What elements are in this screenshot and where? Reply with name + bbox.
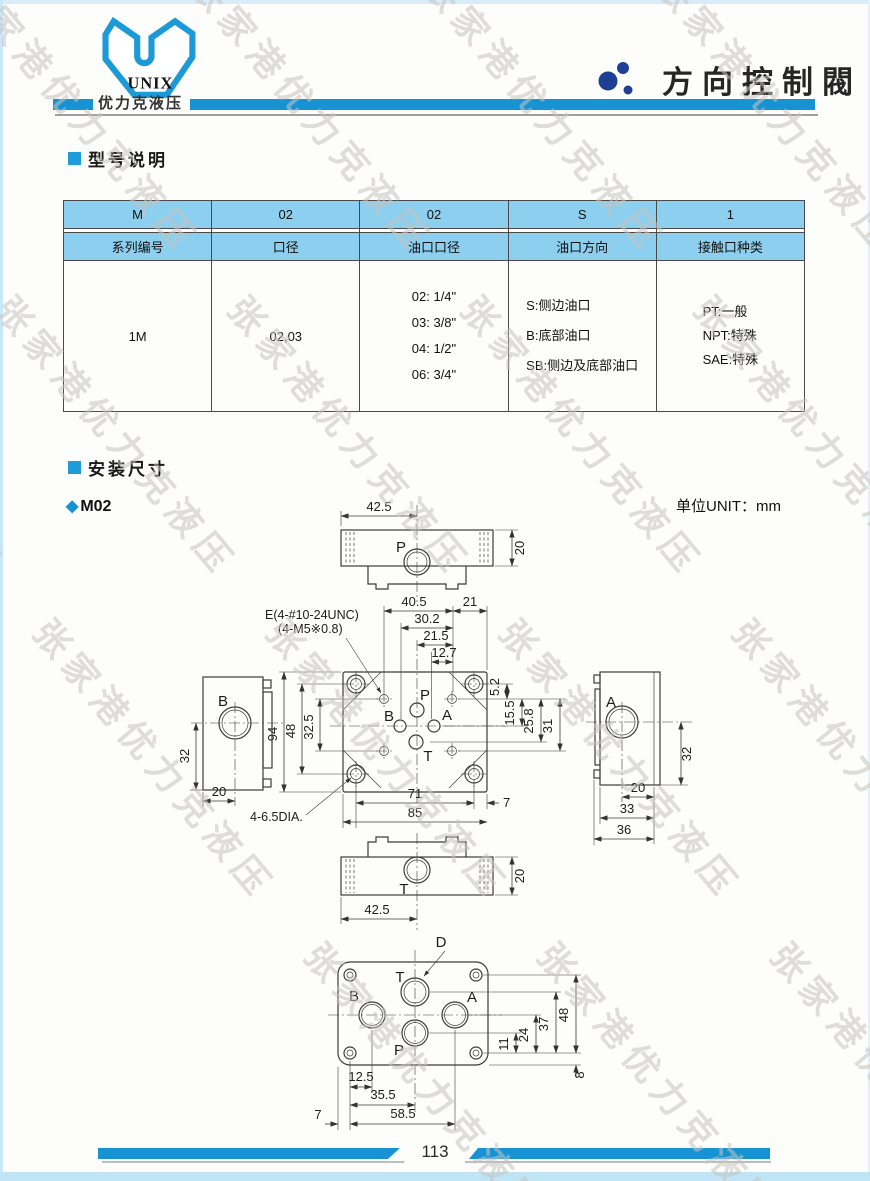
unix-logo: UNIX	[93, 8, 211, 102]
dim-32: 32	[177, 749, 192, 763]
thread-note-2: (4-M5※0.8)	[278, 622, 343, 636]
label-cell: 接触口种类	[656, 233, 804, 261]
dim-12-5: 12.5	[348, 1069, 373, 1084]
dim-21-5: 21.5	[423, 628, 448, 643]
view-bottom-face: T B A P D 11 24 37 48 8	[314, 934, 587, 1130]
dim-85: 85	[408, 805, 422, 820]
port-label-a: A	[467, 989, 477, 1006]
model-code-table: M 02 02 S 1 系列编号 口径 油口口径 油口方向 接触口种类 1M 0…	[63, 200, 805, 412]
code-cell: S	[508, 201, 656, 229]
port-direction-list: S:侧边油口 B:底部油口 SB:侧边及底部油口	[526, 291, 638, 381]
dim-15-5: 15.5	[502, 700, 517, 725]
hole-note: 4-6.5DIA.	[250, 810, 303, 824]
dim-48: 48	[283, 724, 298, 738]
dim-11: 11	[496, 1037, 511, 1051]
view-right-side: A 32 20 33 36	[586, 672, 694, 845]
dim-20: 20	[631, 780, 645, 795]
dim-35-5: 35.5	[370, 1087, 395, 1102]
dim-71: 71	[408, 786, 422, 801]
series-cell: 1M	[64, 261, 212, 412]
section-bullet-icon	[68, 152, 81, 165]
table-row-codes: M 02 02 S 1	[64, 201, 805, 229]
dim-36: 36	[617, 822, 631, 837]
dim-7: 7	[503, 795, 510, 810]
page-title: 方向控制閥	[560, 57, 862, 102]
dim-7: 7	[314, 1107, 321, 1122]
dim-24: 24	[516, 1028, 531, 1042]
thread-note-1: E(4-#10-24UNC)	[265, 608, 359, 622]
connection-type-cell: PT:一般 NPT:特殊 SAE:特殊	[656, 261, 804, 412]
dim-48: 48	[556, 1008, 571, 1022]
section-model-title-label: 型号说明	[88, 146, 168, 171]
dim-5-2: 5.2	[487, 678, 502, 696]
label-cell: 油口方向	[508, 233, 656, 261]
port-size-list: 02: 1/4" 03: 3/8" 04: 1/2" 06: 3/4"	[412, 284, 456, 388]
header-divider	[55, 114, 818, 116]
port-label-b: B	[349, 988, 359, 1005]
dim-25-8: 25.8	[521, 708, 536, 733]
dim-42-5: 42.5	[366, 499, 391, 514]
port-label-p: P	[394, 1042, 404, 1059]
view-top-elevation: P 42.5 20	[341, 499, 527, 602]
section-install-title-label: 安装尺寸	[88, 455, 168, 480]
detail-label-d: D	[436, 934, 447, 951]
logo-subtitle: 优力克液压	[98, 92, 183, 113]
footer-underline-left	[102, 1161, 404, 1163]
code-cell: M	[64, 201, 212, 229]
page-edge-bottom	[0, 1172, 870, 1181]
page-number: 113	[405, 1142, 465, 1162]
port-label-p: P	[420, 687, 430, 704]
dim-58-5: 58.5	[390, 1106, 415, 1121]
dim-21: 21	[463, 594, 477, 609]
footer-underline-right	[465, 1161, 771, 1163]
port-label-b: B	[218, 693, 228, 710]
dim-40-5: 40.5	[401, 594, 426, 609]
unix-logo-text: UNIX	[128, 74, 174, 93]
dimension-drawing: P 42.5 20 P B A	[0, 490, 870, 1150]
dim-33: 33	[620, 801, 634, 816]
code-cell: 02	[212, 201, 360, 229]
port-label-t: T	[395, 969, 404, 986]
port-label-t: T	[423, 748, 432, 765]
port-label-a: A	[442, 707, 452, 724]
footer-bar-right	[469, 1148, 770, 1159]
view-front: P B A T 40.5 21 30.2 21.5 12.7 E(4-#10-2…	[250, 594, 566, 828]
label-cell: 系列编号	[64, 233, 212, 261]
table-row-values: 1M 02,03 02: 1/4" 03: 3/8" 04: 1/2" 06: …	[64, 261, 805, 412]
dim-20: 20	[512, 869, 527, 883]
footer-bar-left	[98, 1148, 400, 1159]
port-size-cell: 02: 1/4" 03: 3/8" 04: 1/2" 06: 3/4"	[360, 261, 508, 412]
port-label-a: A	[606, 694, 616, 711]
dim-20: 20	[212, 784, 226, 799]
page-edge-top	[0, 0, 870, 4]
dim-32-5: 32.5	[301, 714, 316, 739]
dim-12-7: 12.7	[431, 645, 456, 660]
dim-20: 20	[512, 541, 527, 555]
port-label-t: T	[399, 881, 408, 898]
connection-type-list: PT:一般 NPT:特殊 SAE:特殊	[703, 300, 759, 372]
header-accent-bar-left	[53, 99, 93, 110]
dim-31: 31	[540, 719, 555, 733]
dim-30-2: 30.2	[414, 611, 439, 626]
dim-8: 8	[572, 1071, 587, 1078]
size-cell: 02,03	[212, 261, 360, 412]
dim-42-5: 42.5	[364, 902, 389, 917]
code-cell: 1	[656, 201, 804, 229]
table-row-labels: 系列编号 口径 油口口径 油口方向 接触口种类	[64, 233, 805, 261]
label-cell: 油口口径	[360, 233, 508, 261]
port-label-b: B	[384, 708, 394, 725]
port-direction-cell: S:侧边油口 B:底部油口 SB:侧边及底部油口	[508, 261, 656, 412]
label-cell: 口径	[212, 233, 360, 261]
port-label-p: P	[396, 539, 406, 556]
view-bottom-elevation: T 42.5 20	[341, 833, 527, 930]
code-cell: 02	[360, 201, 508, 229]
section-bullet-icon	[68, 461, 81, 474]
catalog-page: UNIX 优力克液压 方向控制閥 型号说明 M 02 02 S 1 系列编号 口…	[0, 0, 870, 1181]
dim-37: 37	[536, 1017, 551, 1031]
section-install-title: 安装尺寸	[68, 455, 168, 480]
section-model-title: 型号说明	[68, 146, 168, 171]
dim-32: 32	[679, 747, 694, 761]
